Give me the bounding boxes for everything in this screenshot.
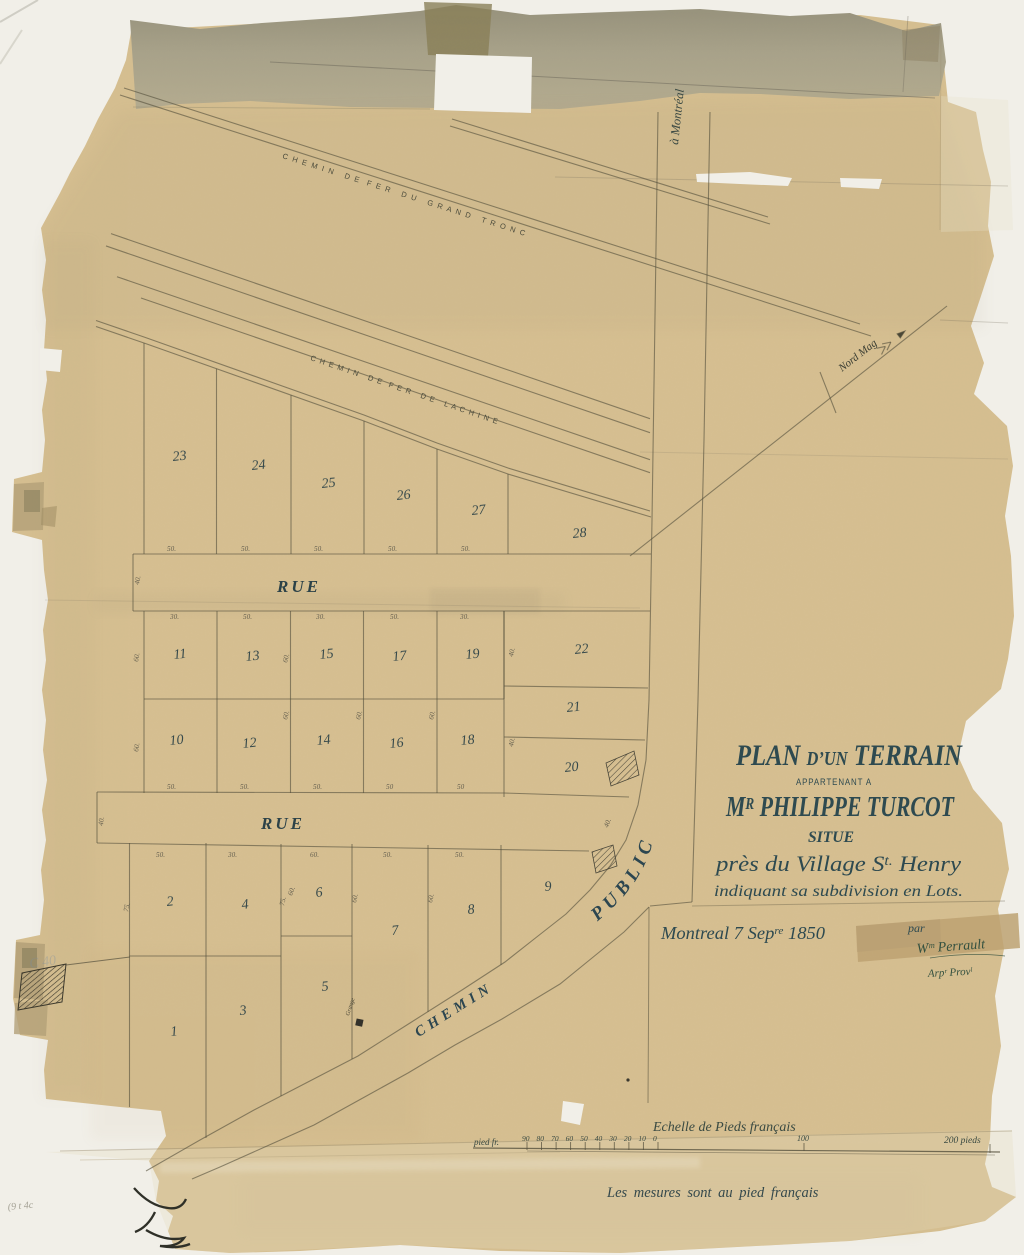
- svg-text:pied fr.: pied fr.: [473, 1137, 499, 1147]
- svg-text:200 pieds: 200 pieds: [944, 1136, 981, 1146]
- svg-text:50: 50: [580, 1134, 588, 1143]
- svg-text:50.: 50.: [313, 783, 322, 791]
- svg-text:26: 26: [396, 488, 411, 504]
- svg-text:50.: 50.: [243, 613, 252, 621]
- svg-text:19: 19: [465, 647, 480, 663]
- svg-text:50.: 50.: [390, 613, 399, 621]
- svg-text:60: 60: [566, 1134, 574, 1143]
- svg-text:10: 10: [638, 1134, 646, 1143]
- svg-text:indiquant sa subdivision en Lo: indiquant sa subdivision en Lots.: [714, 883, 963, 900]
- svg-text:APPARTENANT A: APPARTENANT A: [796, 777, 872, 787]
- svg-text:30.: 30.: [459, 613, 469, 621]
- svg-text:15: 15: [319, 647, 334, 663]
- svg-text:40: 40: [595, 1134, 603, 1143]
- svg-text:23: 23: [172, 449, 187, 465]
- svg-text:60.: 60.: [310, 851, 319, 859]
- svg-text:50.: 50.: [455, 851, 464, 859]
- svg-text:25: 25: [321, 476, 336, 492]
- svg-text:50.: 50.: [241, 545, 250, 553]
- svg-text:27: 27: [471, 502, 487, 518]
- svg-text:70: 70: [551, 1134, 559, 1143]
- svg-text:30: 30: [608, 1134, 617, 1143]
- svg-text:14: 14: [316, 733, 331, 749]
- svg-text:50: 50: [386, 783, 394, 791]
- svg-text:10: 10: [169, 733, 184, 749]
- svg-text:50.: 50.: [167, 545, 176, 553]
- svg-text:SITUE: SITUE: [808, 829, 854, 846]
- svg-text:50.: 50.: [314, 545, 323, 553]
- svg-text:50.: 50.: [167, 783, 176, 791]
- svg-text:50.: 50.: [461, 545, 470, 553]
- svg-text:30.: 30.: [169, 613, 179, 621]
- svg-text:40.: 40.: [133, 575, 142, 585]
- svg-text:3: 3: [238, 1003, 248, 1019]
- svg-text:50.: 50.: [240, 783, 249, 791]
- svg-text:40.: 40.: [97, 816, 106, 826]
- svg-text:50.: 50.: [388, 545, 397, 553]
- svg-text:22: 22: [574, 642, 589, 658]
- svg-text:30.: 30.: [227, 851, 237, 859]
- svg-text:Arpʳ Provˡ: Arpʳ Provˡ: [927, 966, 973, 980]
- svg-text:RUE: RUE: [260, 814, 305, 833]
- svg-text:0: 0: [653, 1134, 657, 1143]
- svg-text:50.: 50.: [383, 851, 392, 859]
- svg-text:100: 100: [797, 1134, 809, 1143]
- svg-text:21: 21: [566, 700, 581, 716]
- svg-text:50: 50: [457, 783, 465, 791]
- svg-text:(9 t 4c: (9 t 4c: [7, 1200, 34, 1213]
- svg-text:28: 28: [572, 526, 587, 542]
- svg-text:80: 80: [537, 1134, 545, 1143]
- svg-text:20: 20: [564, 760, 579, 776]
- svg-text:11: 11: [173, 647, 187, 663]
- svg-text:17: 17: [392, 648, 408, 664]
- svg-text:60.: 60.: [132, 652, 141, 662]
- svg-text:RUE: RUE: [276, 577, 321, 596]
- svg-text:90: 90: [522, 1134, 530, 1143]
- svg-text:30.: 30.: [315, 613, 325, 621]
- svg-text:PLAN D’UN TERRAIN: PLAN D’UN TERRAIN: [735, 739, 963, 772]
- svg-text:12: 12: [242, 736, 257, 752]
- svg-text:16: 16: [389, 736, 404, 752]
- svg-text:20: 20: [624, 1134, 632, 1143]
- svg-text:Echelle de Pieds français: Echelle de Pieds français: [652, 1120, 796, 1135]
- svg-text:50.: 50.: [156, 851, 165, 859]
- svg-text:13: 13: [245, 649, 260, 665]
- svg-text:par: par: [907, 921, 925, 935]
- svg-text:près du Village St. Henry: près du Village St. Henry: [714, 851, 962, 876]
- svg-text:Les mesures sont au pied franç: Les mesures sont au pied français: [606, 1185, 819, 1201]
- svg-text:MR PHILIPPE TURCOT: MR PHILIPPE TURCOT: [725, 792, 955, 823]
- svg-text:60.: 60.: [132, 742, 141, 752]
- svg-text:24: 24: [251, 458, 266, 474]
- svg-text:18: 18: [460, 733, 475, 749]
- svg-text:Montreal 7 Sepre 1850: Montreal 7 Sepre 1850: [660, 923, 825, 943]
